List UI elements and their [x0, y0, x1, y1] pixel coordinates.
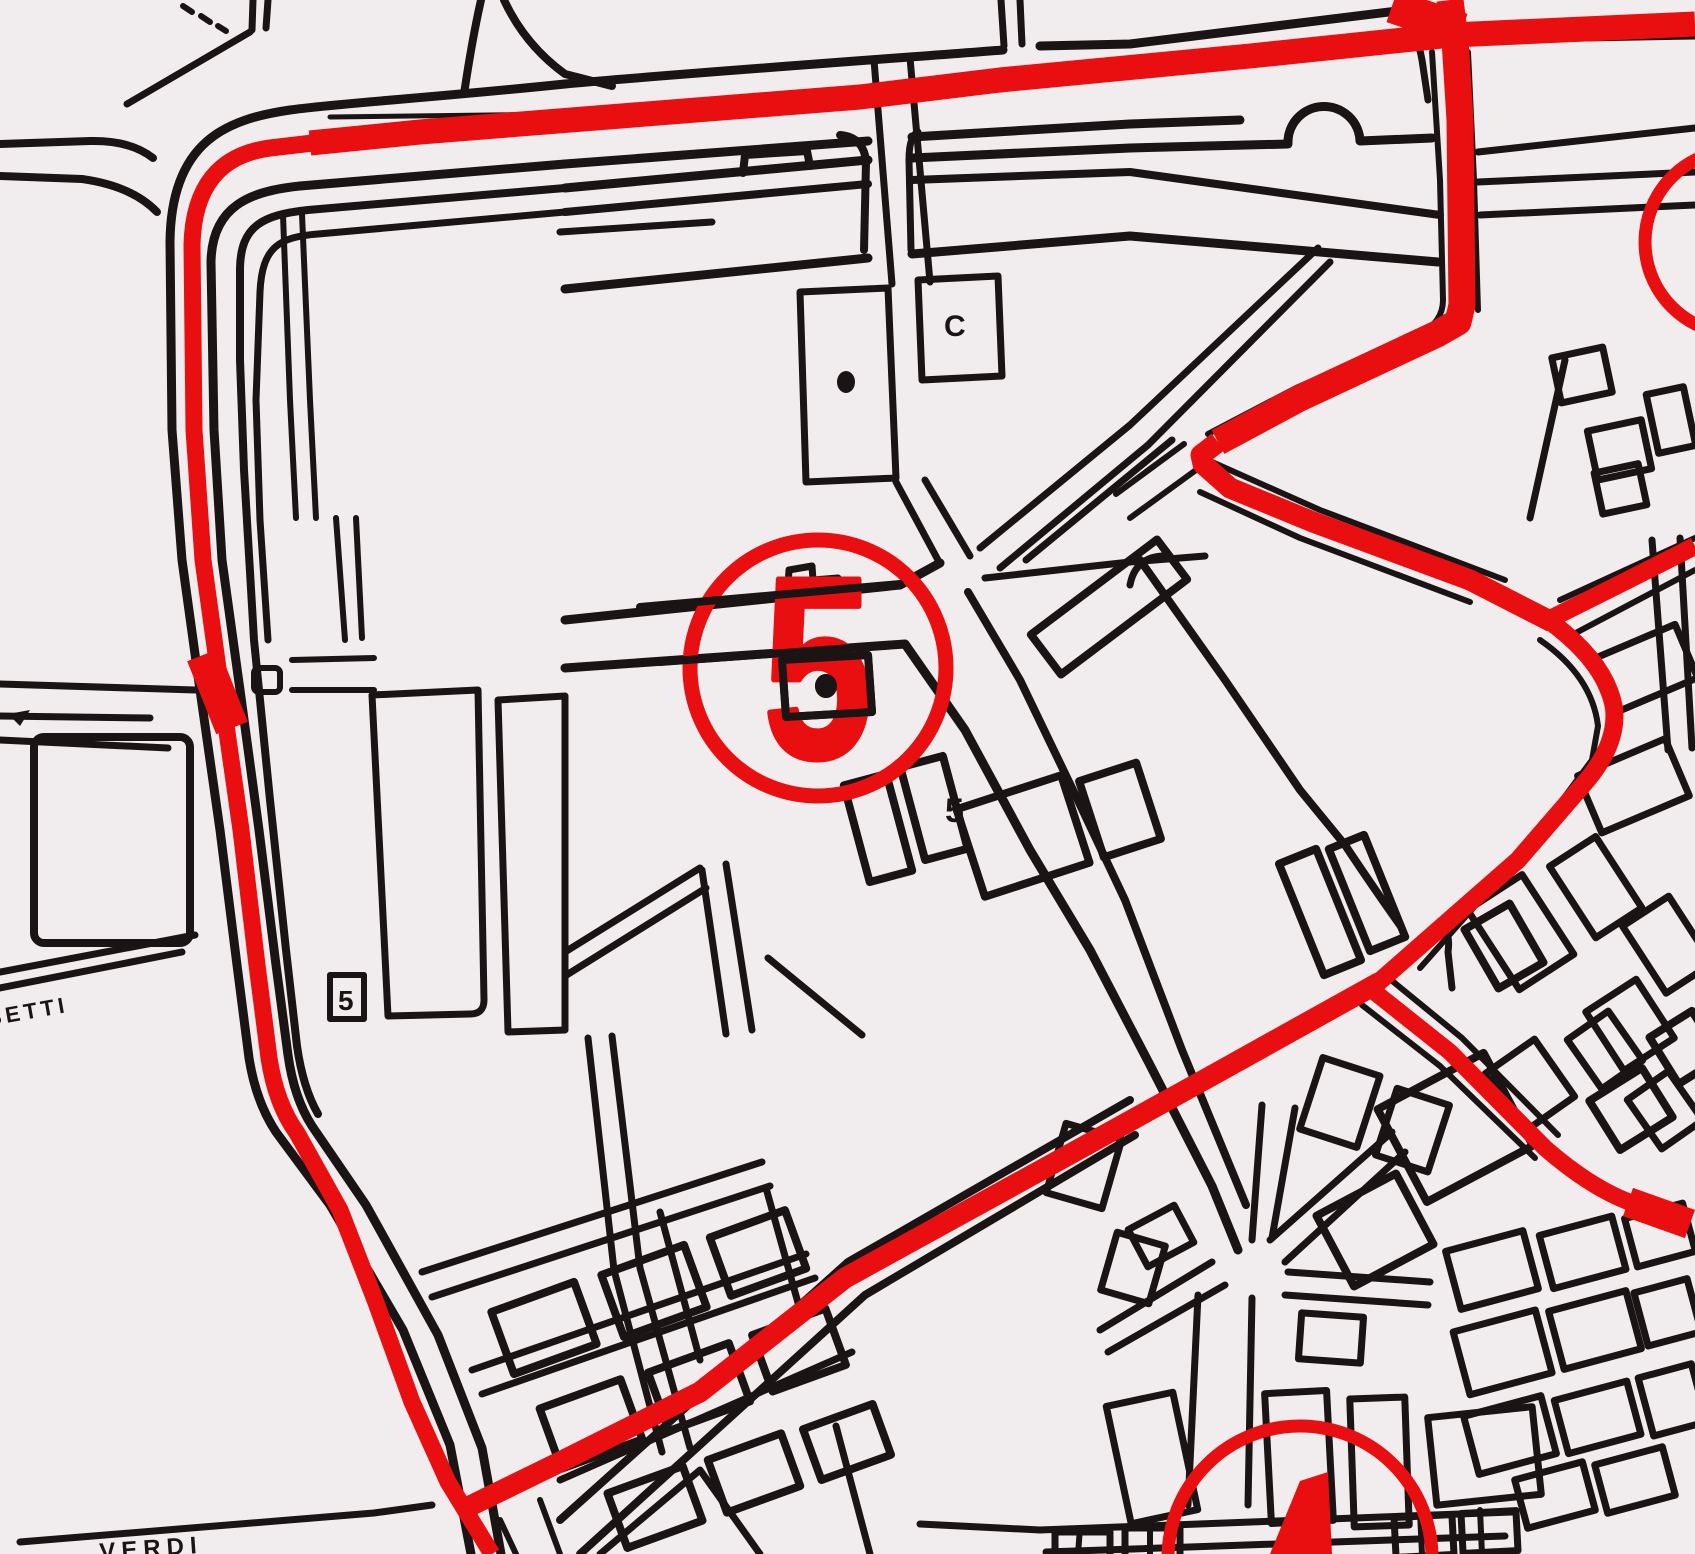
svg-text:C: C [944, 310, 966, 343]
svg-text:5: 5 [338, 985, 354, 1016]
